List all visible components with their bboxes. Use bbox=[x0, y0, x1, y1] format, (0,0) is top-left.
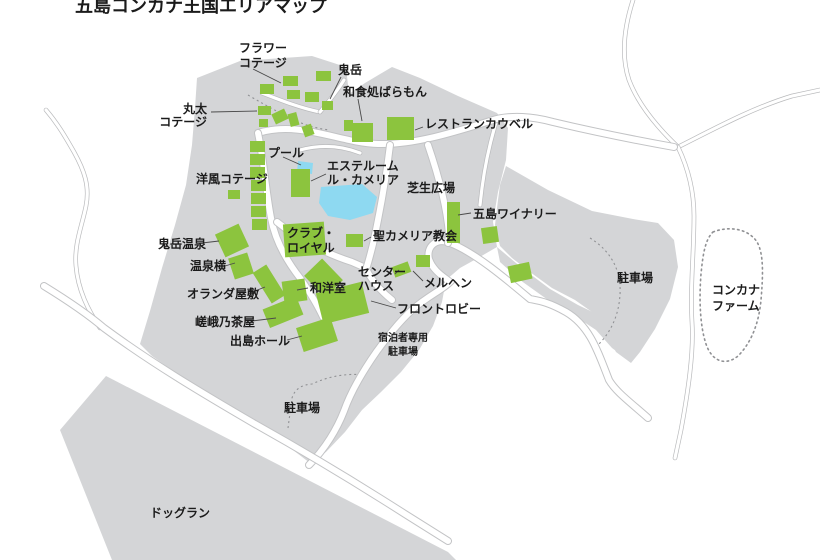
label-washoku-baramon-line-1: 和食処ばらもん bbox=[342, 84, 427, 99]
label-center-house-line-2: ハウス bbox=[358, 279, 394, 293]
label-goto-winery-line-1: 五島ワイナリー bbox=[473, 206, 557, 221]
label-esthe-room-line-1: エステルーム bbox=[327, 159, 399, 173]
flower-cottage-3-shape bbox=[316, 71, 331, 81]
label-konkana-farm-line-1: コンカナ bbox=[712, 283, 760, 297]
label-dog-run-line-1: ドッグラン bbox=[150, 505, 210, 520]
western-cottage-1-shape bbox=[250, 141, 265, 152]
label-maruta-cottage: 丸太コテージ bbox=[159, 101, 208, 129]
label-restaurant-cowbell-line-1: レストランカウベル bbox=[425, 117, 533, 131]
label-onsen-yoko-line-1: 温泉横 bbox=[190, 258, 227, 273]
label-front-lobby-line-1: フロントロビー bbox=[397, 301, 481, 316]
map-title: 五島コンカナ王国エリアマップ bbox=[75, 0, 328, 16]
label-guest-parking-line-1: 宿泊者専用 bbox=[378, 331, 428, 344]
area-map: 五島コンカナ王国エリアマップフラワーコテージ鬼岳和食処ばらもん丸太コテージレスト… bbox=[0, 0, 820, 560]
label-konkana-farm-line-2: ファーム bbox=[712, 299, 760, 313]
label-dog-run: ドッグラン bbox=[150, 505, 210, 520]
label-onidake-onsen-line-1: 鬼岳温泉 bbox=[158, 236, 207, 251]
western-cottage-6-shape bbox=[251, 206, 266, 217]
label-pool-line-1: プール bbox=[268, 145, 304, 160]
center-house-building-2-shape bbox=[416, 255, 430, 267]
flower-cottage-6-shape bbox=[258, 106, 271, 115]
flower-cottage-5-shape bbox=[287, 90, 300, 99]
washoku-baramon-building-shape bbox=[352, 123, 373, 142]
area-map-page: 五島コンカナ王国エリアマップフラワーコテージ鬼岳和食処ばらもん丸太コテージレスト… bbox=[0, 0, 820, 560]
thin-road-casing-2 bbox=[624, 0, 678, 147]
flower-cottage-12-shape bbox=[344, 120, 353, 131]
label-restaurant-cowbell: レストランカウベル bbox=[425, 117, 533, 131]
label-saganochaya: 嵯峨乃茶屋 bbox=[195, 314, 255, 329]
label-wayoshitsu-line-1: 和洋室 bbox=[309, 280, 346, 295]
label-esthe-room: エステルームル・カメリア bbox=[327, 159, 399, 187]
label-holland-yashiki: オランダ屋敷 bbox=[187, 286, 260, 301]
label-onidake-onsen: 鬼岳温泉 bbox=[158, 236, 207, 251]
flower-cottage-1-shape bbox=[260, 84, 274, 94]
label-dejima-hall: 出島ホール bbox=[230, 333, 290, 348]
label-club-royal-line-2: ロイヤル bbox=[287, 241, 335, 255]
thin-road-4 bbox=[675, 147, 694, 458]
flower-cottage-2-shape bbox=[283, 76, 298, 86]
label-pool: プール bbox=[268, 145, 304, 160]
label-wayoshitsu: 和洋室 bbox=[309, 280, 346, 295]
label-parking-south-line-1: 駐車場 bbox=[284, 400, 320, 415]
label-onidake: 鬼岳 bbox=[338, 62, 362, 77]
western-cottage-7-shape bbox=[252, 219, 267, 230]
flower-cottage-9-shape bbox=[322, 101, 333, 110]
map-title-line-1: 五島コンカナ王国エリアマップ bbox=[75, 0, 328, 16]
western-cottage-5-shape bbox=[251, 193, 266, 204]
label-club-royal-line-1: クラブ・ bbox=[287, 225, 335, 240]
label-flower-cottage-line-2: コテージ bbox=[239, 56, 287, 70]
thin-road-casing-3 bbox=[678, 90, 820, 147]
western-cottage-2-shape bbox=[250, 154, 265, 165]
label-washoku-baramon: 和食処ばらもん bbox=[342, 84, 427, 99]
label-parking-south: 駐車場 bbox=[284, 400, 320, 415]
label-holland-yashiki-line-1: オランダ屋敷 bbox=[187, 286, 260, 301]
flower-cottage-4-shape bbox=[305, 92, 319, 102]
label-western-cottage-line-1: 洋風コテージ bbox=[196, 171, 268, 186]
label-lawn-plaza: 芝生広場 bbox=[407, 180, 455, 195]
label-flower-cottage: フラワーコテージ bbox=[239, 41, 287, 70]
label-front-lobby: フロントロビー bbox=[397, 301, 481, 316]
esthe-room-building-shape bbox=[291, 169, 310, 197]
label-center-house-line-1: センター bbox=[358, 265, 406, 279]
label-parking-east-line-1: 駐車場 bbox=[617, 270, 653, 285]
label-flower-cottage-line-1: フラワー bbox=[239, 41, 287, 55]
label-western-cottage: 洋風コテージ bbox=[196, 171, 268, 186]
thin-road-2 bbox=[624, 0, 678, 147]
label-saganochaya-line-1: 嵯峨乃茶屋 bbox=[195, 314, 255, 329]
label-guest-parking-line-2: 駐車場 bbox=[388, 345, 418, 358]
restaurant-cowbell-building-shape bbox=[387, 117, 414, 140]
label-konkana-farm: コンカナファーム bbox=[712, 283, 760, 313]
label-lawn-plaza-line-1: 芝生広場 bbox=[407, 180, 455, 195]
label-marchen: メルヘン bbox=[424, 276, 472, 290]
label-maruta-cottage-line-1: 丸太 bbox=[182, 101, 208, 116]
label-st-camellia-church-line-1: 聖カメリア教会 bbox=[373, 228, 458, 243]
st-camellia-church-building-shape bbox=[346, 234, 363, 247]
goto-winery-building-shape bbox=[481, 226, 499, 244]
western-cottage-8-shape bbox=[228, 190, 240, 199]
label-onsen-yoko: 温泉横 bbox=[190, 258, 227, 273]
label-marchen-line-1: メルヘン bbox=[424, 276, 472, 290]
label-maruta-cottage-line-2: コテージ bbox=[159, 115, 207, 129]
label-dejima-hall-line-1: 出島ホール bbox=[230, 333, 290, 348]
label-esthe-room-line-2: ル・カメリア bbox=[327, 173, 399, 187]
label-st-camellia-church: 聖カメリア教会 bbox=[373, 228, 458, 243]
flower-cottage-11-shape bbox=[259, 119, 268, 127]
label-onidake-line-1: 鬼岳 bbox=[338, 62, 362, 77]
label-parking-east: 駐車場 bbox=[617, 270, 653, 285]
label-goto-winery: 五島ワイナリー bbox=[473, 206, 557, 221]
